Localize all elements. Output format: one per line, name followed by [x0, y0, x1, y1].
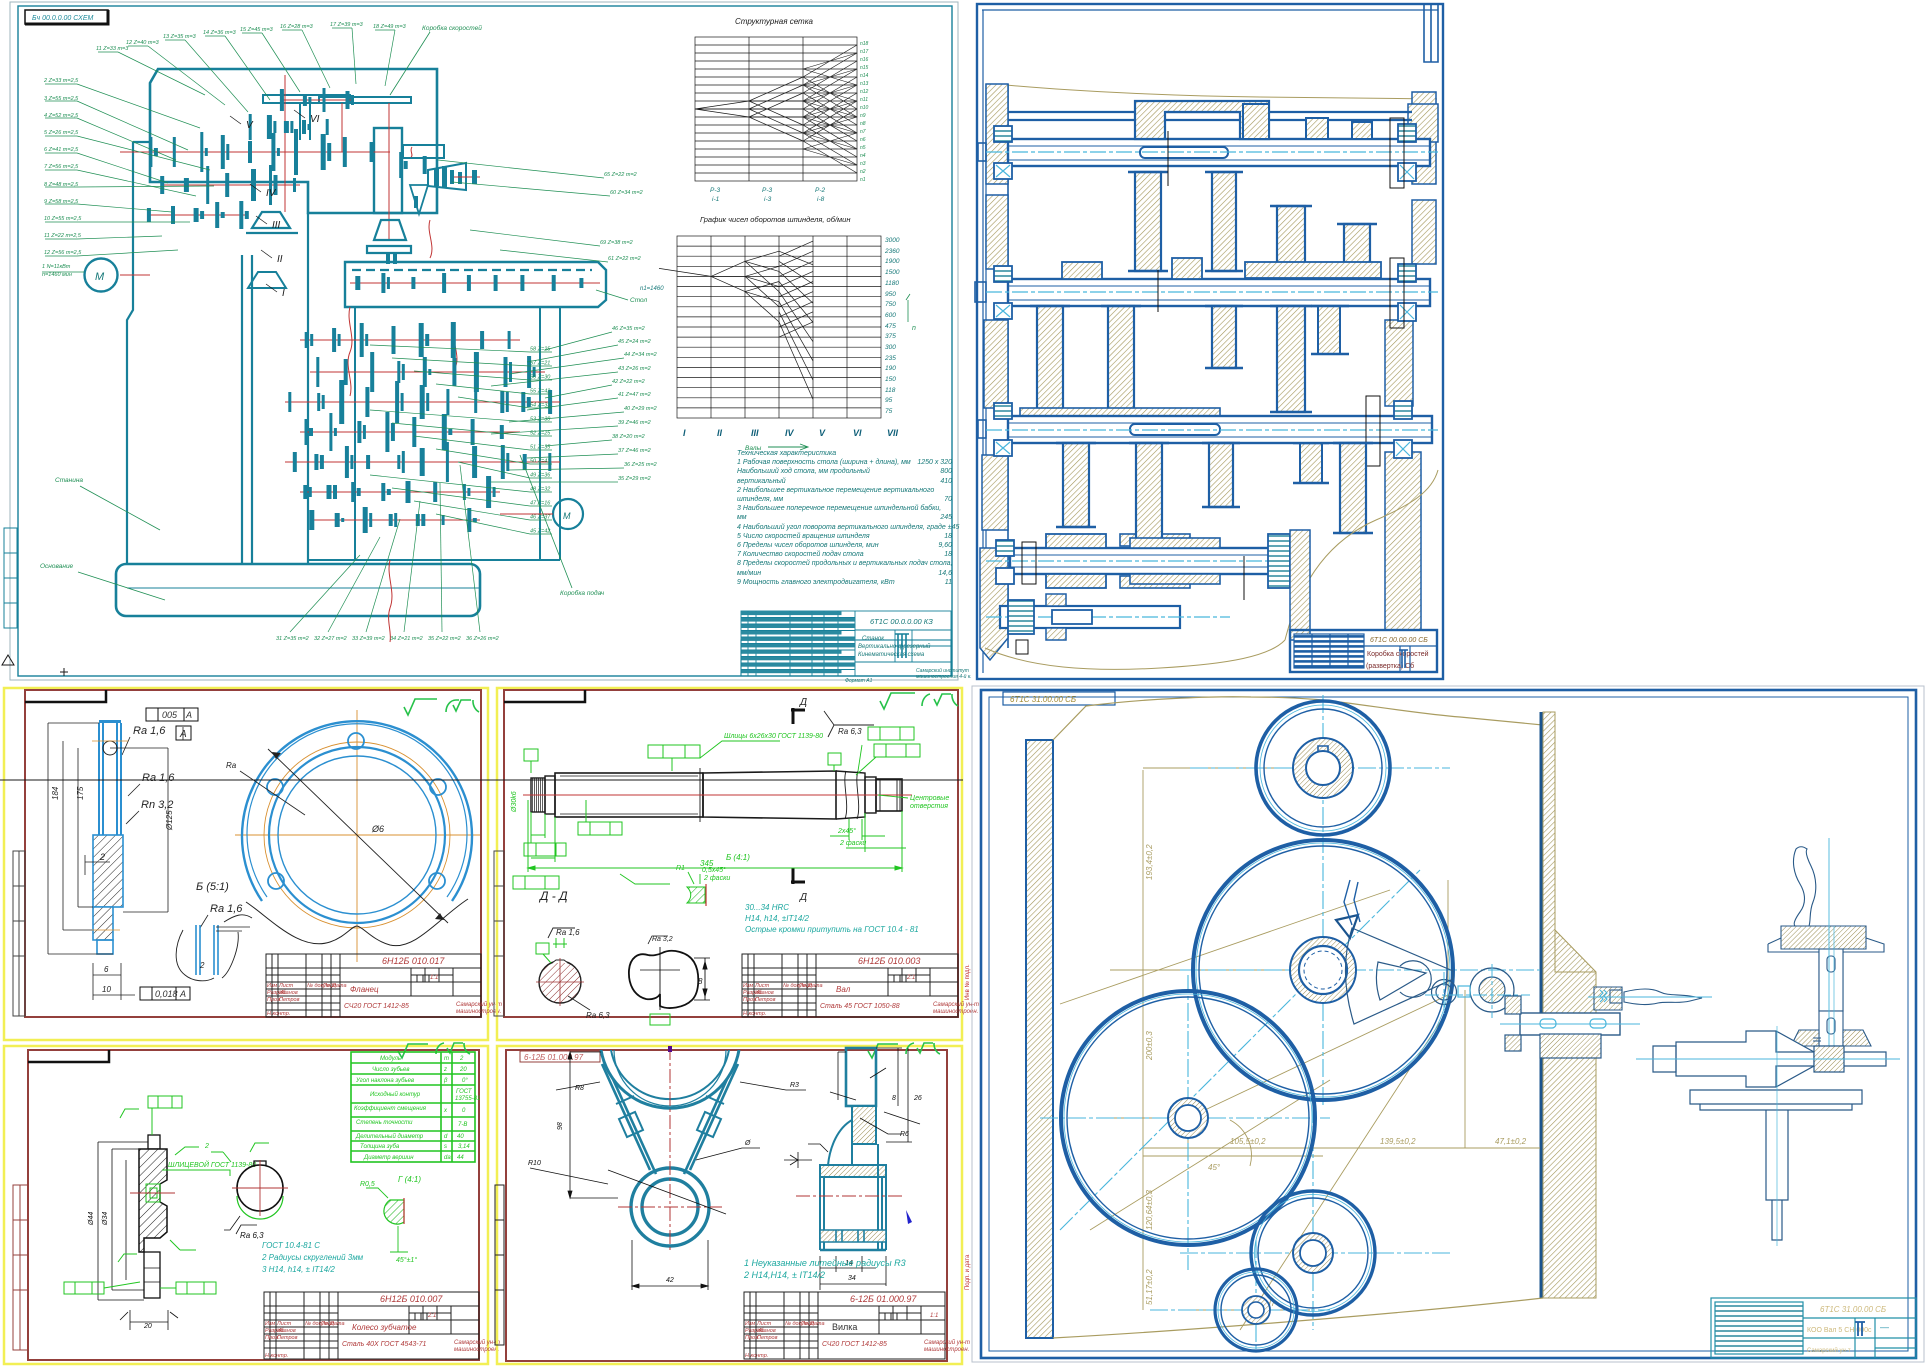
svg-text:Ra 3,2: Ra 3,2 — [652, 936, 673, 943]
svg-text:200±0,3: 200±0,3 — [1145, 1031, 1154, 1061]
svg-text:1180: 1180 — [885, 280, 899, 287]
svg-text:Н.контр.: Н.контр. — [265, 1353, 288, 1359]
svg-text:2360: 2360 — [884, 248, 900, 255]
svg-text:57 Z=21: 57 Z=21 — [530, 361, 550, 367]
svg-text:18: 18 — [944, 551, 952, 558]
svg-text:1:1: 1:1 — [430, 975, 438, 981]
svg-text:46 Z=35 m=2: 46 Z=35 m=2 — [612, 326, 645, 332]
svg-text:Исходный контур: Исходный контур — [370, 1091, 421, 1098]
svg-text:Р-3: Р-3 — [710, 187, 721, 194]
svg-text:52 Z=25: 52 Z=25 — [530, 431, 551, 437]
svg-text:Кинематическая схема: Кинематическая схема — [858, 652, 925, 658]
svg-text:z: z — [443, 1067, 447, 1073]
svg-text:9,60: 9,60 — [938, 542, 952, 549]
svg-text:Станок: Станок — [862, 636, 885, 642]
svg-text:950: 950 — [885, 291, 896, 298]
svg-text:6-12Б 01.000.97: 6-12Б 01.000.97 — [850, 1294, 917, 1304]
svg-text:4 Z=52 m=2,5: 4 Z=52 m=2,5 — [44, 113, 79, 119]
svg-text:193,4±0,2: 193,4±0,2 — [1145, 844, 1154, 880]
svg-text:Ra 6,3: Ra 6,3 — [240, 1231, 264, 1240]
svg-text:R3: R3 — [790, 1082, 799, 1089]
svg-text:Центровые: Центровые — [910, 795, 949, 802]
svg-text:175: 175 — [76, 786, 85, 800]
svg-text:Число зубьев: Число зубьев — [372, 1067, 410, 1073]
svg-text:2 Радиусы скруглений 3мм: 2 Радиусы скруглений 3мм — [261, 1253, 364, 1262]
svg-text:0,018: 0,018 — [155, 989, 178, 999]
svg-text:4 Наибольший угол поворота вер: 4 Наибольший угол поворота вертикального… — [737, 523, 959, 531]
svg-text:Самарский ун-т: Самарский ун-т — [1807, 1347, 1851, 1354]
svg-text:11: 11 — [945, 579, 952, 586]
svg-text:VI: VI — [310, 114, 320, 125]
svg-text:Модуль: Модуль — [380, 1056, 401, 1062]
svg-text:Изм: Изм — [743, 983, 753, 989]
svg-text:n17: n17 — [860, 49, 869, 55]
svg-text:Г (4:1): Г (4:1) — [398, 1175, 421, 1184]
svg-text:Коробка скоростей: Коробка скоростей — [1367, 650, 1429, 658]
svg-text:Острые кромки притупить на ГОС: Острые кромки притупить на ГОСТ 10.4 - 8… — [745, 925, 919, 934]
svg-text:34: 34 — [848, 1275, 856, 1282]
svg-text:5 Z=26 m=2,5: 5 Z=26 m=2,5 — [44, 130, 79, 136]
svg-text:Лист: Лист — [276, 1321, 292, 1327]
svg-text:2:1: 2:1 — [427, 1313, 436, 1319]
svg-text:2 Z=33 m=2,5: 2 Z=33 m=2,5 — [43, 78, 79, 84]
svg-text:Ø44: Ø44 — [88, 1212, 95, 1226]
svg-text:35 Z=22 m=2: 35 Z=22 m=2 — [428, 636, 461, 642]
svg-text:Ra 1,6: Ra 1,6 — [142, 772, 175, 784]
svg-text:A: A — [185, 710, 192, 720]
svg-text:105,5±0,2: 105,5±0,2 — [1230, 1137, 1266, 1146]
svg-text:3 Z=55 m=2,5: 3 Z=55 m=2,5 — [44, 96, 79, 102]
svg-text:6Т1С 00.00.00 СБ: 6Т1С 00.00.00 СБ — [1370, 637, 1428, 644]
svg-text:da: da — [444, 1155, 451, 1161]
svg-text:13 Z=35 m=3: 13 Z=35 m=3 — [163, 34, 197, 40]
svg-text:17 Z=39 m=3: 17 Z=39 m=3 — [330, 22, 364, 28]
svg-text:Сталь 45 ГОСТ 1050-88: Сталь 45 ГОСТ 1050-88 — [820, 1003, 900, 1010]
svg-text:16 Z=28 m=3: 16 Z=28 m=3 — [280, 24, 314, 30]
svg-text:150: 150 — [885, 376, 896, 383]
svg-text:VII: VII — [887, 428, 899, 438]
svg-text:60 Z=34 m=2: 60 Z=34 m=2 — [610, 190, 643, 196]
svg-text:45 Z=42: 45 Z=42 — [530, 529, 550, 535]
svg-text:42: 42 — [666, 1277, 674, 1284]
svg-text:n10: n10 — [860, 105, 869, 111]
svg-text:мм: мм — [737, 514, 747, 521]
svg-text:31 Z=35 m=2: 31 Z=35 m=2 — [276, 636, 309, 642]
svg-text:Вертикально-фрезерный: Вертикально-фрезерный — [858, 643, 931, 650]
svg-text:Лист: Лист — [754, 983, 770, 989]
svg-text:M: M — [563, 511, 571, 521]
svg-text:2: 2 — [199, 961, 205, 970]
svg-text:18: 18 — [944, 533, 952, 540]
svg-text:30...34 HRC: 30...34 HRC — [745, 903, 789, 912]
svg-text:18 Z=49 m=3: 18 Z=49 m=3 — [373, 24, 407, 30]
svg-text:32 Z=27 m=2: 32 Z=27 m=2 — [314, 636, 347, 642]
svg-text:СЧ20 ГОСТ 1412-85: СЧ20 ГОСТ 1412-85 — [344, 1003, 409, 1010]
svg-text:6Н12Б 010.003: 6Н12Б 010.003 — [858, 956, 920, 966]
svg-text:51 Z=35: 51 Z=35 — [530, 445, 551, 451]
svg-text:Иванов: Иванов — [277, 1328, 296, 1334]
svg-text:Шлицы 6х26х30 ГОСТ 1139-80: Шлицы 6х26х30 ГОСТ 1139-80 — [724, 733, 823, 740]
svg-text:График чисел оборотов шпинделя: График чисел оборотов шпинделя, об/мин — [700, 215, 850, 224]
svg-text:2 Н14,Н14, ± IT14/2: 2 Н14,Н14, ± IT14/2 — [743, 1270, 825, 1280]
svg-text:47 Z=16: 47 Z=16 — [530, 501, 551, 507]
svg-text:Бч 00.0.0.00 СХЕМ: Бч 00.0.0.00 СХЕМ — [32, 15, 94, 22]
svg-text:i-1: i-1 — [712, 196, 720, 203]
svg-text:n: n — [912, 325, 916, 332]
svg-text:Ra: Ra — [226, 761, 237, 770]
svg-text:Наибольший ход стола, мм: Наибольший ход стола, мм продольный — [737, 467, 870, 475]
svg-text:475: 475 — [885, 323, 896, 330]
svg-text:ШЛИЦЕВОЙ ГОСТ 1139-80: ШЛИЦЕВОЙ ГОСТ 1139-80 — [168, 1160, 256, 1169]
svg-text:118: 118 — [885, 387, 896, 394]
svg-text:Петров: Петров — [279, 997, 300, 1003]
svg-text:Фланец: Фланец — [350, 985, 379, 994]
svg-text:2:1: 2:1 — [906, 975, 915, 981]
svg-text:37 Z=46 m=2: 37 Z=46 m=2 — [618, 448, 651, 454]
svg-text:Р-3: Р-3 — [762, 187, 773, 194]
svg-text:7 Количество скоростей подач с: 7 Количество скоростей подач стола — [737, 550, 864, 558]
svg-text:53 Z=38: 53 Z=38 — [530, 417, 551, 423]
svg-text:7-В: 7-В — [458, 1122, 467, 1128]
svg-text:8: 8 — [892, 1095, 896, 1102]
svg-text:Петров: Петров — [757, 1335, 778, 1341]
svg-text:машиностроен.: машиностроен. — [924, 1347, 969, 1353]
svg-text:Н.контр.: Н.контр. — [745, 1353, 768, 1359]
svg-text:2: 2 — [459, 1056, 464, 1062]
svg-text:Угол наклона зубьев: Угол наклона зубьев — [355, 1078, 414, 1084]
svg-text:39 Z=46 m=2: 39 Z=46 m=2 — [618, 420, 651, 426]
svg-text:45°±1°: 45°±1° — [396, 1256, 417, 1264]
svg-text:Изм: Изм — [267, 983, 277, 989]
svg-text:6Н12Б 010.017: 6Н12Б 010.017 — [382, 956, 445, 966]
svg-text:41 Z=47 m=2: 41 Z=47 m=2 — [618, 392, 651, 398]
svg-text:43 Z=26 m=2: 43 Z=26 m=2 — [618, 366, 651, 372]
svg-text:i-3: i-3 — [764, 196, 772, 203]
svg-text:мм/мин: мм/мин — [737, 570, 761, 577]
svg-text:35 Z=29 m=2: 35 Z=29 m=2 — [618, 476, 651, 482]
svg-text:75: 75 — [885, 408, 893, 415]
svg-text:Иванов: Иванов — [279, 990, 298, 996]
svg-text:46 Z=37: 46 Z=37 — [530, 515, 551, 521]
svg-text:Изм: Изм — [265, 1321, 275, 1327]
svg-text:n9: n9 — [860, 113, 866, 119]
svg-text:n15: n15 — [860, 65, 869, 71]
svg-text:184: 184 — [51, 786, 60, 800]
svg-text:36 Z=26 m=2: 36 Z=26 m=2 — [466, 636, 499, 642]
svg-text:1 Неуказанные литейные радиус: 1 Неуказанные литейные радиусы R3 — [744, 1258, 906, 1268]
svg-text:n18: n18 — [860, 41, 869, 47]
svg-text:Дата: Дата — [809, 1321, 825, 1327]
svg-text:машиностроения 4-й к.: машиностроения 4-й к. — [916, 673, 972, 680]
svg-text:40: 40 — [457, 1134, 464, 1140]
svg-text:n=1460 мин: n=1460 мин — [42, 272, 72, 278]
svg-text:6Т1С 31.00.00 СБ: 6Т1С 31.00.00 СБ — [1010, 695, 1076, 704]
svg-text:Б (5:1): Б (5:1) — [196, 881, 229, 893]
svg-text:245: 245 — [939, 514, 952, 521]
svg-text:8: 8 — [698, 977, 703, 986]
svg-text:Стол: Стол — [630, 297, 648, 304]
svg-text:R8: R8 — [575, 1085, 584, 1092]
svg-text:40 Z=29 m=2: 40 Z=29 m=2 — [624, 406, 657, 412]
svg-text:Ø6: Ø6 — [371, 824, 384, 834]
svg-text:Изм: Изм — [745, 1321, 755, 1327]
svg-text:ГОСТ: ГОСТ — [456, 1089, 473, 1095]
svg-text:1 N=11кВт: 1 N=11кВт — [42, 264, 71, 270]
svg-text:13755-81: 13755-81 — [455, 1096, 480, 1102]
svg-text:95: 95 — [885, 397, 893, 404]
svg-text:Петров: Петров — [755, 997, 776, 1003]
svg-text:R1: R1 — [676, 865, 685, 872]
svg-text:14 Z=36 m=3: 14 Z=36 m=3 — [203, 30, 237, 36]
svg-text:Н.контр.: Н.контр. — [267, 1011, 290, 1017]
svg-text:45 Z=24 m=2: 45 Z=24 m=2 — [618, 339, 651, 345]
svg-text:49 Z=36: 49 Z=36 — [530, 473, 551, 479]
svg-text:n6: n6 — [860, 137, 866, 143]
svg-text:(развертка) Сб: (развертка) Сб — [1366, 662, 1414, 670]
svg-text:11 Z=33 m=3: 11 Z=33 m=3 — [96, 46, 129, 52]
svg-text:6 Пределы чисел оборотов шпинд: 6 Пределы чисел оборотов шпинделя, мин — [737, 541, 879, 549]
svg-text:Коэффициент смещения: Коэффициент смещения — [354, 1106, 427, 1112]
svg-text:0°: 0° — [462, 1078, 468, 1084]
svg-text:Самарский ун-т: Самарский ун-т — [924, 1339, 970, 1346]
svg-text:800: 800 — [940, 468, 952, 475]
svg-text:s: s — [444, 1144, 447, 1150]
svg-text:47,1±0,2: 47,1±0,2 — [1495, 1137, 1527, 1146]
svg-text:VI: VI — [853, 428, 862, 438]
svg-text:Диаметр вершин: Диаметр вершин — [363, 1155, 414, 1161]
svg-text:вертикальный: вертикальный — [737, 477, 786, 485]
svg-text:20: 20 — [459, 1067, 467, 1073]
svg-text:Колесо зубчатое: Колесо зубчатое — [352, 1323, 417, 1332]
svg-text:m: m — [444, 1056, 449, 1062]
svg-text:50 Z=41: 50 Z=41 — [530, 459, 550, 465]
svg-text:n3: n3 — [860, 161, 866, 167]
svg-text:34 Z=21 m=2: 34 Z=21 m=2 — [390, 636, 423, 642]
svg-text:2 фаски: 2 фаски — [703, 875, 730, 882]
svg-text:отверстия: отверстия — [910, 803, 948, 810]
svg-text:СЧ20 ГОСТ 1412-85: СЧ20 ГОСТ 1412-85 — [822, 1341, 887, 1348]
svg-text:3 Н14, h14, ± IT14/2: 3 Н14, h14, ± IT14/2 — [262, 1265, 335, 1274]
svg-text:Б (4:1): Б (4:1) — [726, 853, 750, 862]
svg-text:Ø34: Ø34 — [102, 1212, 109, 1226]
svg-text:6: 6 — [104, 965, 109, 974]
svg-text:1:1: 1:1 — [930, 1313, 938, 1319]
svg-text:Толщина зуба: Толщина зуба — [360, 1144, 400, 1150]
svg-text:IV: IV — [266, 188, 277, 199]
svg-text:20: 20 — [143, 1323, 152, 1330]
svg-text:Вал: Вал — [836, 985, 851, 994]
svg-text:M: M — [95, 271, 105, 283]
svg-text:2 фаски: 2 фаски — [839, 840, 866, 847]
svg-text:Делительный диаметр: Делительный диаметр — [355, 1133, 424, 1140]
svg-text:II: II — [717, 428, 723, 438]
svg-text:44 Z=34 m=2: 44 Z=34 m=2 — [624, 352, 657, 358]
svg-text:Инв № подл.: Инв № подл. — [964, 964, 971, 1000]
svg-text:58 Z=25: 58 Z=25 — [530, 347, 551, 353]
svg-text:120,64±0,3: 120,64±0,3 — [1145, 1189, 1154, 1230]
svg-text:8 Z=48 m=2,5: 8 Z=48 m=2,5 — [44, 182, 79, 188]
svg-text:38 Z=20 m=2: 38 Z=20 m=2 — [612, 434, 645, 440]
svg-text:9 Z=58 m=2,5: 9 Z=58 m=2,5 — [44, 199, 79, 205]
svg-text:300: 300 — [885, 344, 896, 351]
svg-text:Техническая характеристика: Техническая характеристика — [737, 450, 836, 457]
svg-text:n4: n4 — [860, 153, 866, 159]
svg-text:26: 26 — [913, 1095, 922, 1102]
svg-text:n14: n14 — [860, 73, 869, 79]
svg-text:III: III — [272, 220, 281, 231]
svg-text:Ø: Ø — [744, 1140, 751, 1147]
svg-text:R0,5: R0,5 — [360, 1181, 375, 1188]
svg-text:Ra 6,3: Ra 6,3 — [838, 727, 862, 736]
svg-text:n13: n13 — [860, 81, 869, 87]
svg-text:44: 44 — [457, 1155, 464, 1161]
svg-text:Степень точности: Степень точности — [356, 1120, 413, 1126]
svg-text:Самарский ун-т: Самарский ун-т — [456, 1001, 502, 1008]
svg-text:190: 190 — [885, 365, 896, 372]
svg-text:Структурная сетка: Структурная сетка — [735, 17, 813, 26]
svg-text:Самарский ун-т: Самарский ун-т — [454, 1339, 500, 1346]
svg-text:1250 х 320: 1250 х 320 — [917, 459, 952, 466]
svg-text:ГОСТ 10.4-81 С: ГОСТ 10.4-81 С — [262, 1241, 320, 1250]
svg-text:70: 70 — [944, 496, 952, 503]
svg-text:235: 235 — [884, 355, 896, 362]
svg-text:69 Z=38 m=2: 69 Z=38 m=2 — [600, 240, 633, 246]
svg-text:139,5±0,2: 139,5±0,2 — [1380, 1137, 1416, 1146]
svg-text:Д: Д — [799, 892, 807, 903]
svg-text:Коробка подач: Коробка подач — [560, 589, 605, 597]
svg-text:2: 2 — [204, 1143, 209, 1150]
svg-text:n11: n11 — [860, 97, 868, 103]
svg-text:56 Z=30: 56 Z=30 — [530, 375, 551, 381]
svg-text:n1: n1 — [860, 177, 866, 183]
svg-text:410: 410 — [940, 478, 952, 485]
svg-text:33 Z=39 m=2: 33 Z=39 m=2 — [352, 636, 385, 642]
svg-text:I: I — [282, 288, 285, 299]
svg-text:Коробка скоростей: Коробка скоростей — [422, 24, 482, 32]
svg-text:2: 2 — [99, 852, 105, 862]
svg-text:i-8: i-8 — [817, 196, 825, 203]
svg-text:Сталь 40Х ГОСТ 4543-71: Сталь 40Х ГОСТ 4543-71 — [342, 1341, 426, 1348]
svg-text:14,6: 14,6 — [938, 570, 952, 577]
svg-text:51,17±0,2: 51,17±0,2 — [1145, 1269, 1154, 1305]
svg-text:Лист: Лист — [756, 1321, 772, 1327]
svg-text:Дата: Дата — [331, 983, 347, 989]
svg-text:n16: n16 — [860, 57, 869, 63]
svg-text:36 Z=25 m=2: 36 Z=25 m=2 — [624, 462, 657, 468]
svg-text:Станина: Станина — [55, 477, 83, 484]
svg-text:Петров: Петров — [277, 1335, 298, 1341]
svg-text:Р-2: Р-2 — [815, 187, 826, 194]
svg-text:Н.контр.: Н.контр. — [743, 1011, 766, 1017]
svg-text:R10: R10 — [528, 1160, 541, 1167]
svg-text:10: 10 — [102, 985, 111, 994]
svg-text:11 Z=22 m=2,5: 11 Z=22 m=2,5 — [44, 233, 82, 239]
svg-text:750: 750 — [885, 301, 896, 308]
svg-text:Дата: Дата — [329, 1321, 345, 1327]
svg-text:A: A — [179, 989, 186, 999]
svg-text:1500: 1500 — [885, 269, 900, 276]
svg-text:6-12Б 01.000.97: 6-12Б 01.000.97 — [524, 1053, 584, 1062]
svg-text:6Н12Б 010.007: 6Н12Б 010.007 — [380, 1294, 443, 1304]
svg-text:Ra 1,6: Ra 1,6 — [556, 928, 580, 937]
svg-text:Ra 6,3: Ra 6,3 — [586, 1011, 610, 1020]
svg-text:Rn 3,2: Rn 3,2 — [141, 799, 173, 811]
svg-text:45°: 45° — [1208, 1163, 1221, 1172]
svg-text:005: 005 — [162, 710, 178, 720]
svg-text:Иванов: Иванов — [755, 990, 774, 996]
svg-text:15 Z=45 m=3: 15 Z=45 m=3 — [240, 27, 274, 33]
svg-text:3 Наибольшее поперечное переме: 3 Наибольшее поперечное перемещение шпин… — [737, 504, 941, 512]
svg-text:10 Z=55 m=2,5: 10 Z=55 m=2,5 — [44, 216, 82, 222]
svg-text:55 Z=42: 55 Z=42 — [530, 389, 550, 395]
svg-text:65 Z=22 m=2: 65 Z=22 m=2 — [604, 172, 637, 178]
svg-text:Н14, h14, ±IT14/2: Н14, h14, ±IT14/2 — [745, 914, 810, 923]
svg-text:12 Z=56 m=2,5: 12 Z=56 m=2,5 — [44, 250, 82, 256]
svg-text:3,14: 3,14 — [458, 1144, 470, 1150]
svg-text:3000: 3000 — [885, 237, 900, 244]
svg-text:Ra 1,6: Ra 1,6 — [133, 725, 166, 737]
svg-text:R6: R6 — [900, 1131, 909, 1138]
svg-text:6 Z=41 m=2,5: 6 Z=41 m=2,5 — [44, 147, 79, 153]
svg-text:—: — — [1880, 1322, 1889, 1332]
svg-text:n2: n2 — [860, 169, 866, 175]
svg-text:V: V — [819, 428, 826, 438]
svg-text:III: III — [751, 428, 759, 438]
svg-text:n5: n5 — [860, 145, 866, 151]
svg-text:Самарский институт: Самарский институт — [916, 667, 969, 674]
svg-text:Подп. и дата: Подп. и дата — [965, 1254, 971, 1290]
svg-text:Ra 1,6: Ra 1,6 — [210, 903, 243, 915]
svg-text:шпинделя, мм: шпинделя, мм — [737, 495, 783, 503]
svg-text:12 Z=40 m=3: 12 Z=40 m=3 — [126, 40, 160, 46]
svg-text:6Т1С 00.0.0.00 КЗ: 6Т1С 00.0.0.00 КЗ — [870, 617, 933, 626]
svg-text:5 Число скоростей вращения шпи: 5 Число скоростей вращения шпинделя — [737, 532, 870, 540]
svg-text:n7: n7 — [860, 129, 866, 135]
svg-text:II: II — [277, 254, 283, 265]
svg-text:7 Z=56 m=2,5: 7 Z=56 m=2,5 — [44, 164, 79, 170]
svg-text:1900: 1900 — [885, 258, 900, 265]
svg-text:600: 600 — [885, 312, 896, 319]
svg-text:n8: n8 — [860, 121, 866, 127]
svg-text:Д - Д: Д - Д — [538, 889, 568, 903]
svg-text:8 Пределы скоростей продольных: 8 Пределы скоростей продольных и вертика… — [737, 559, 953, 567]
svg-text:машиностроен.: машиностроен. — [454, 1347, 499, 1353]
svg-text:0,5х45°: 0,5х45° — [702, 866, 726, 874]
svg-text:2 Наибольшее вертикальное пере: 2 Наибольшее вертикальное перемещение ве… — [736, 486, 934, 494]
svg-text:Ø30k6: Ø30k6 — [511, 791, 518, 813]
svg-text:54 Z=33: 54 Z=33 — [530, 403, 551, 409]
svg-text:98: 98 — [557, 1122, 564, 1130]
svg-text:2х45°: 2х45° — [837, 827, 856, 835]
svg-text:6Т1С 31.00.00 СБ: 6Т1С 31.00.00 СБ — [1820, 1305, 1886, 1314]
svg-text:Лист: Лист — [278, 983, 294, 989]
svg-text:1 Рабочая поверхность стола (ш: 1 Рабочая поверхность стола (ширина + дл… — [737, 458, 911, 466]
svg-text:IV: IV — [785, 428, 795, 438]
svg-text:Дата: Дата — [807, 983, 823, 989]
svg-text:Вилка: Вилка — [832, 1322, 857, 1332]
svg-text:Основание: Основание — [40, 563, 74, 570]
svg-text:β: β — [443, 1078, 448, 1084]
svg-text:машиностроен.: машиностроен. — [456, 1009, 501, 1015]
svg-text:Д: Д — [799, 697, 807, 708]
svg-text:n12: n12 — [860, 89, 869, 95]
svg-text:n1=1460: n1=1460 — [640, 286, 664, 292]
svg-text:375: 375 — [885, 333, 896, 340]
svg-text:Иванов: Иванов — [757, 1328, 776, 1334]
svg-text:Формат А1: Формат А1 — [845, 678, 873, 684]
svg-text:61 Z=22 m=2: 61 Z=22 m=2 — [608, 256, 641, 262]
svg-text:Ø125: Ø125 — [165, 810, 174, 831]
